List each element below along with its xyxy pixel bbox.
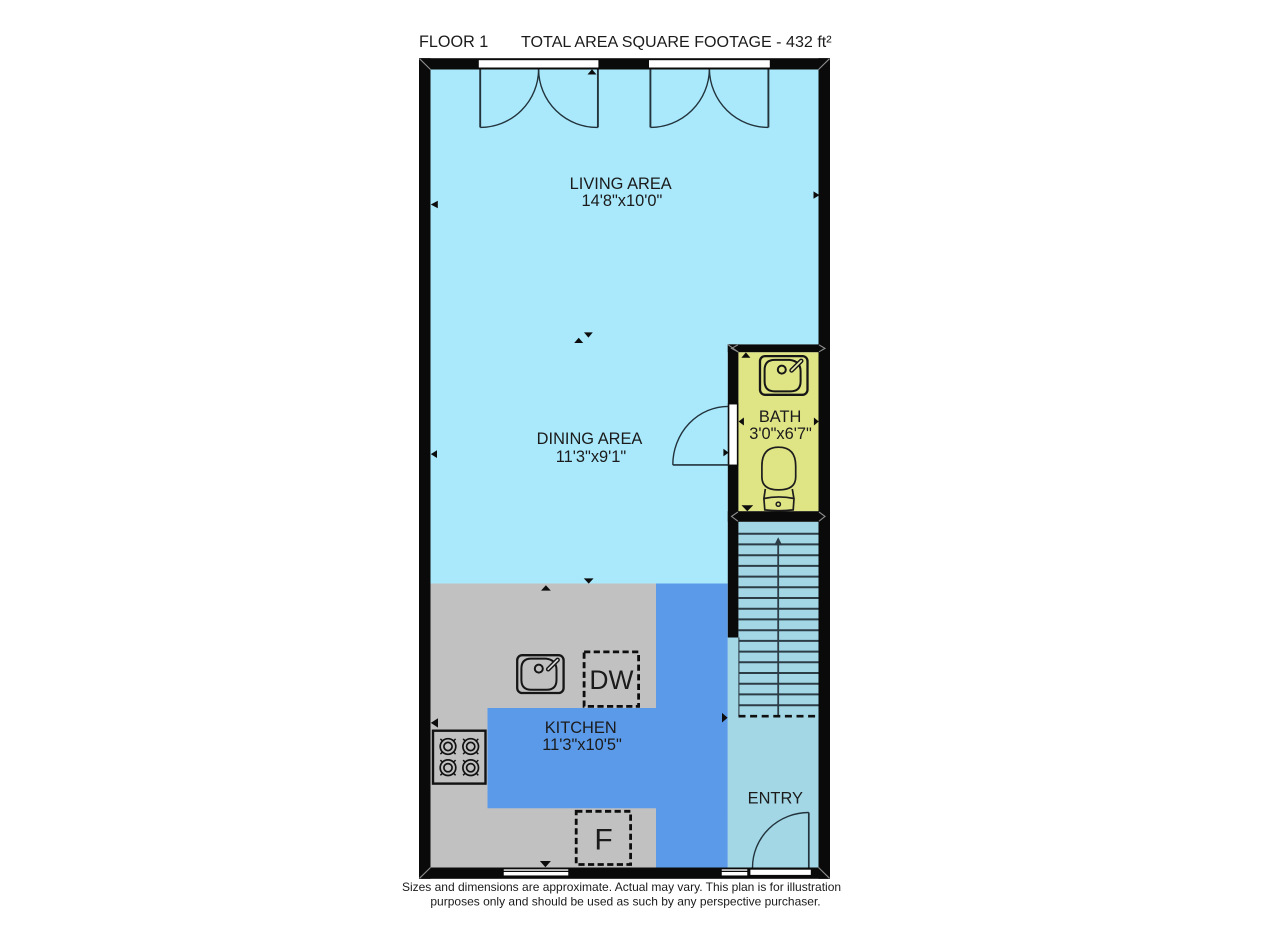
svg-text:14'8"x10'0": 14'8"x10'0": [582, 192, 663, 210]
svg-text:KITCHEN: KITCHEN: [545, 719, 617, 737]
svg-text:11'3"x9'1": 11'3"x9'1": [556, 448, 627, 466]
svg-text:purposes only and should be us: purposes only and should be used as such…: [430, 895, 820, 909]
svg-text:LIVING AREA: LIVING AREA: [570, 175, 672, 193]
svg-text:3'0"x6'7": 3'0"x6'7": [749, 425, 812, 443]
svg-text:F: F: [594, 823, 612, 856]
svg-text:DW: DW: [589, 665, 633, 695]
svg-text:DINING AREA: DINING AREA: [537, 430, 643, 448]
svg-text:ENTRY: ENTRY: [748, 790, 803, 808]
svg-text:Sizes and dimensions are appro: Sizes and dimensions are approximate. Ac…: [402, 880, 841, 894]
svg-text:11'3"x10'5": 11'3"x10'5": [542, 736, 622, 754]
svg-text:BATH: BATH: [759, 408, 802, 426]
svg-text:TOTAL AREA SQUARE FOOTAGE - 43: TOTAL AREA SQUARE FOOTAGE - 432 ft²: [521, 33, 832, 51]
svg-text:FLOOR 1: FLOOR 1: [419, 33, 488, 51]
